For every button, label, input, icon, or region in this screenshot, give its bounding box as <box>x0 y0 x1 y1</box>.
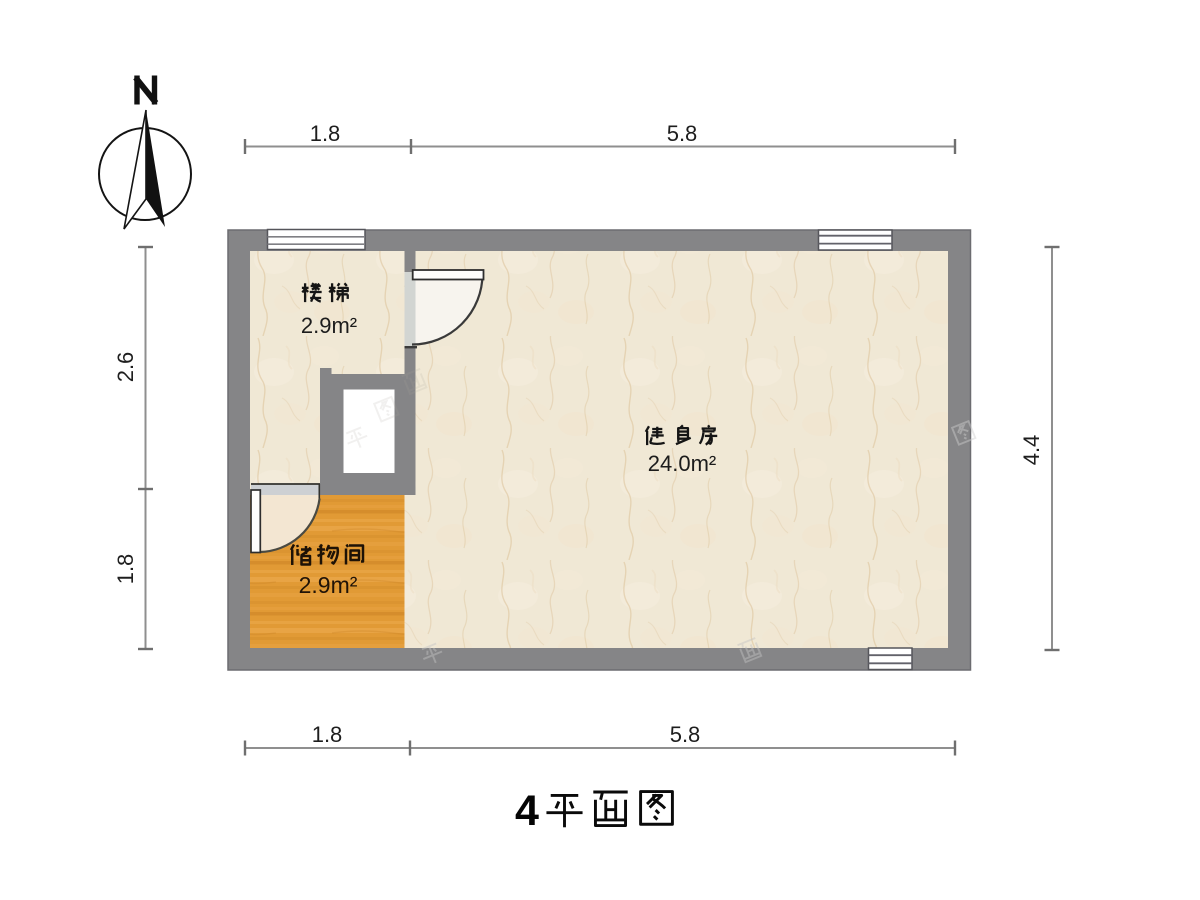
svg-text:2.9m²: 2.9m² <box>299 572 358 598</box>
svg-text:24.0m²: 24.0m² <box>648 451 716 476</box>
svg-text:1.8: 1.8 <box>113 554 138 585</box>
svg-text:5.8: 5.8 <box>667 121 698 146</box>
svg-text:4: 4 <box>515 787 539 835</box>
svg-text:4.4: 4.4 <box>1019 435 1044 466</box>
svg-text:1.8: 1.8 <box>312 722 343 747</box>
svg-text:5.8: 5.8 <box>670 722 701 747</box>
svg-text:2.6: 2.6 <box>113 352 138 383</box>
svg-text:1.8: 1.8 <box>310 121 341 146</box>
svg-text:2.9m²: 2.9m² <box>301 313 357 338</box>
